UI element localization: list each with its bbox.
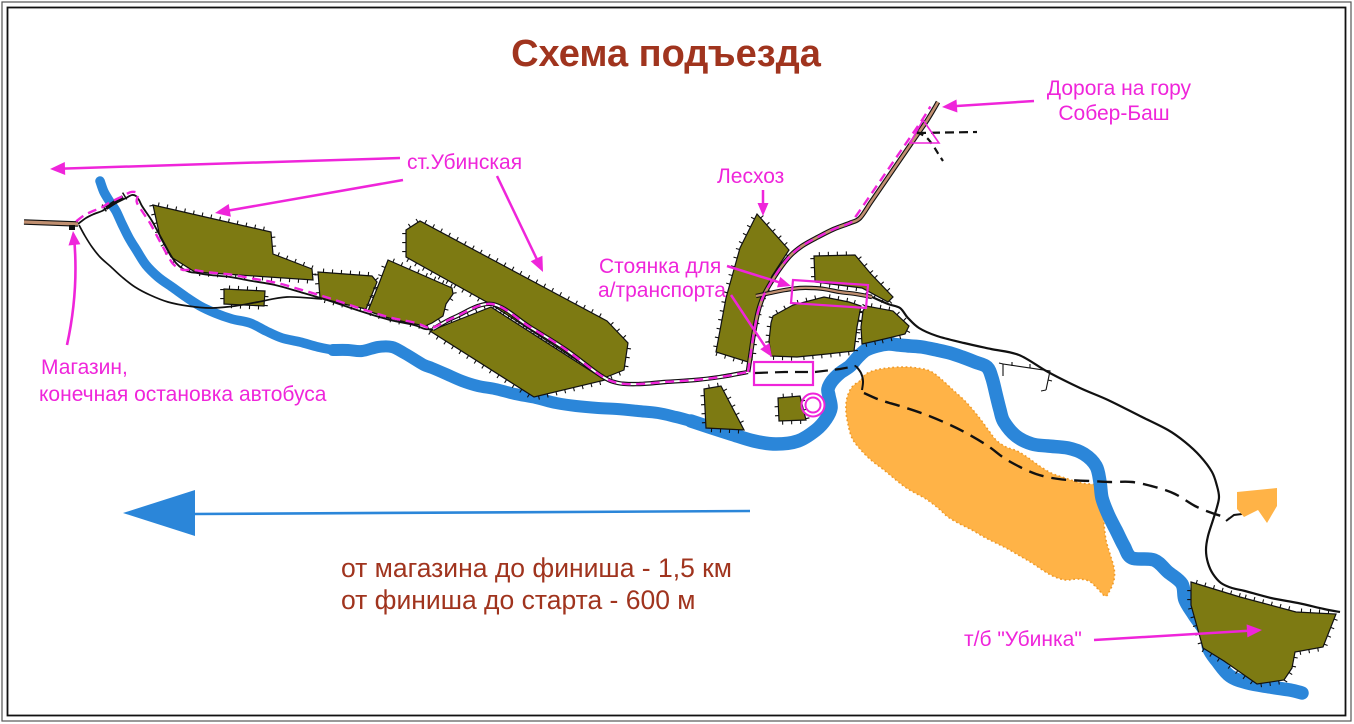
svg-text:а/транспорта: а/транспорта [598,279,726,302]
svg-text:от магазина до финиша - 1,5 км: от магазина до финиша - 1,5 км [341,553,732,583]
svg-text:Стоянка для: Стоянка для [599,255,721,278]
svg-text:ст.Убинская: ст.Убинская [407,151,522,174]
svg-text:Собер-Баш: Собер-Баш [1058,102,1169,125]
svg-text:т/б "Убинка": т/б "Убинка" [964,628,1082,651]
svg-text:Магазин,: Магазин, [41,356,128,379]
svg-text:Лесхоз: Лесхоз [717,165,784,188]
svg-text:Дорога на гору: Дорога на гору [1047,77,1192,100]
svg-text:от финиша до старта - 600 м: от финиша до старта - 600 м [341,585,696,615]
svg-text:конечная остановка автобуса: конечная остановка автобуса [39,383,327,406]
svg-text:Схема подъезда: Схема подъезда [511,33,822,75]
